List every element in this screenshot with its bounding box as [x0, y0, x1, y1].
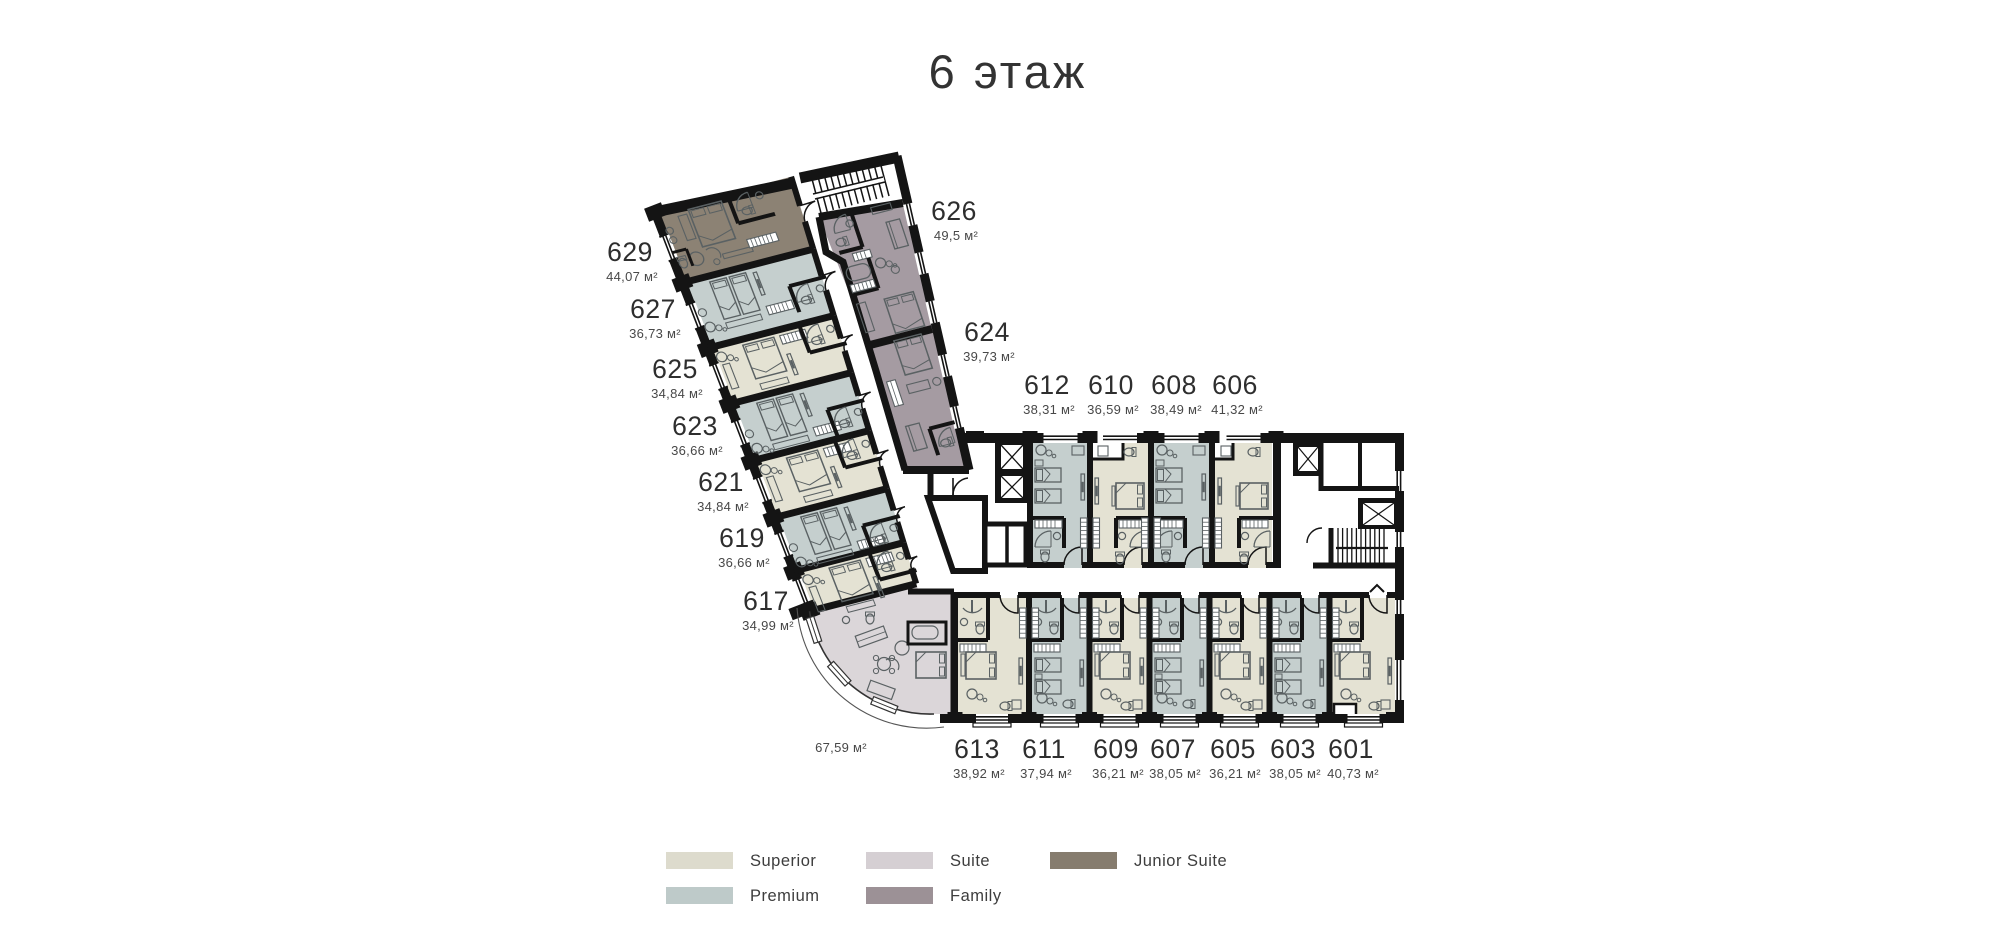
- svg-text:613: 613: [954, 734, 1000, 764]
- svg-text:40,73 м²: 40,73 м²: [1327, 766, 1379, 781]
- svg-text:Family: Family: [950, 887, 1002, 905]
- svg-text:609: 609: [1093, 734, 1139, 764]
- svg-text:34,84 м²: 34,84 м²: [651, 386, 703, 401]
- svg-text:606: 606: [1212, 370, 1258, 400]
- svg-text:610: 610: [1088, 370, 1134, 400]
- svg-text:49,5 м²: 49,5 м²: [934, 228, 979, 243]
- svg-text:67,59 м²: 67,59 м²: [815, 740, 867, 755]
- svg-text:36,21 м²: 36,21 м²: [1092, 766, 1144, 781]
- svg-text:36,21 м²: 36,21 м²: [1209, 766, 1261, 781]
- svg-text:38,05 м²: 38,05 м²: [1149, 766, 1201, 781]
- svg-text:627: 627: [630, 294, 676, 324]
- svg-text:608: 608: [1151, 370, 1197, 400]
- svg-text:44,07 м²: 44,07 м²: [606, 269, 658, 284]
- svg-text:624: 624: [964, 317, 1010, 347]
- svg-text:6 этаж: 6 этаж: [929, 45, 1088, 98]
- svg-text:629: 629: [607, 237, 653, 267]
- svg-text:34,84 м²: 34,84 м²: [697, 499, 749, 514]
- svg-text:36,66 м²: 36,66 м²: [718, 555, 770, 570]
- svg-text:623: 623: [672, 411, 718, 441]
- svg-text:626: 626: [931, 196, 977, 226]
- svg-text:605: 605: [1210, 734, 1256, 764]
- svg-text:603: 603: [1270, 734, 1316, 764]
- svg-text:38,31 м²: 38,31 м²: [1023, 402, 1075, 417]
- svg-text:37,94 м²: 37,94 м²: [1020, 766, 1072, 781]
- svg-text:607: 607: [1150, 734, 1196, 764]
- svg-text:Suite: Suite: [950, 852, 990, 870]
- svg-text:38,92 м²: 38,92 м²: [953, 766, 1005, 781]
- svg-text:625: 625: [652, 354, 698, 384]
- svg-text:38,05 м²: 38,05 м²: [1269, 766, 1321, 781]
- svg-text:619: 619: [719, 523, 765, 553]
- svg-text:34,99 м²: 34,99 м²: [742, 618, 794, 633]
- svg-text:Junior Suite: Junior Suite: [1134, 852, 1227, 870]
- svg-text:612: 612: [1024, 370, 1070, 400]
- svg-text:36,59 м²: 36,59 м²: [1087, 402, 1139, 417]
- svg-text:41,32 м²: 41,32 м²: [1211, 402, 1263, 417]
- svg-text:36,66 м²: 36,66 м²: [671, 443, 723, 458]
- svg-text:Superior: Superior: [750, 852, 816, 870]
- svg-text:39,73 м²: 39,73 м²: [963, 349, 1015, 364]
- svg-text:621: 621: [698, 467, 744, 497]
- svg-text:617: 617: [743, 586, 789, 616]
- svg-text:36,73 м²: 36,73 м²: [629, 326, 681, 341]
- svg-text:611: 611: [1022, 734, 1066, 764]
- svg-text:601: 601: [1328, 734, 1374, 764]
- svg-text:Premium: Premium: [750, 887, 820, 905]
- svg-text:38,49 м²: 38,49 м²: [1150, 402, 1202, 417]
